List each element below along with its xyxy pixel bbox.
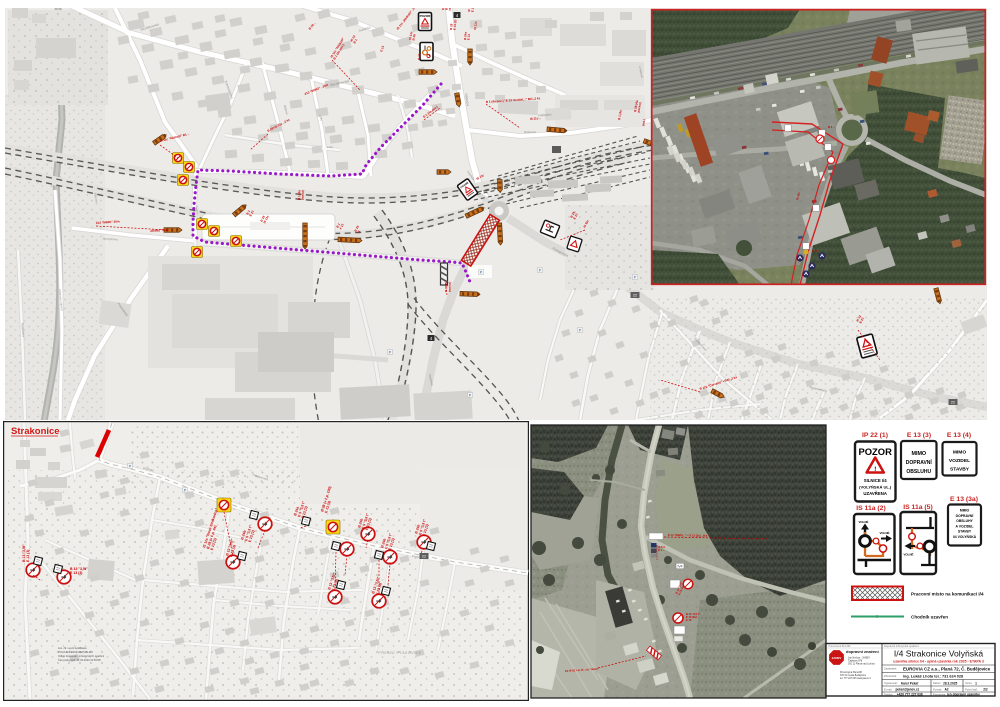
svg-text:E 13 (3): E 13 (3): [70, 571, 82, 575]
svg-text:VOZIDEL: VOZIDEL: [949, 458, 970, 464]
svg-text:DOPRAVNÍ: DOPRAVNÍ: [906, 458, 933, 466]
svg-text:IS 11a (2): IS 11a (2): [856, 505, 885, 512]
svg-text:OBSLUHY: OBSLUHY: [956, 519, 973, 523]
svg-text:Datum:: Datum:: [933, 681, 942, 685]
svg-text:+420 777 227 036: +420 777 227 036: [897, 693, 923, 697]
svg-text:E 13 (3): E 13 (3): [26, 550, 30, 562]
svg-text:Odbor dopravně - inženýrských: Odbor dopravně - inženýrských opatření: [58, 654, 105, 658]
svg-text:tel. 777 227 036 www.janev.cz: tel. 777 227 036 www.janev.cz: [840, 677, 872, 680]
svg-text:Tovární: Tovární: [195, 205, 200, 215]
svg-text:E 13 (3a): E 13 (3a): [950, 496, 978, 503]
svg-text:(VOLYŇSKÁ UL.): (VOLYŇSKÁ UL.): [859, 485, 892, 490]
svg-text:IS 11c: IS 11c: [473, 21, 478, 30]
svg-text:MIMO: MIMO: [953, 450, 967, 456]
svg-text:A2: A2: [944, 688, 948, 692]
svg-text:Pracovní místo na komunikaci I: Pracovní místo na komunikaci I/4: [911, 592, 984, 597]
svg-text:B 28: B 28: [417, 53, 422, 60]
svg-text:!: !: [874, 467, 876, 473]
svg-text:Lužy: Lužy: [327, 145, 334, 149]
svg-text:STAVBY: STAVBY: [950, 467, 970, 473]
svg-text:jen dopravní uzavírky: jen dopravní uzavírky: [946, 693, 980, 697]
svg-text:pekar@janev.cz: pekar@janev.cz: [895, 688, 919, 692]
svg-text:E 13: E 13: [812, 249, 818, 253]
svg-text:Strakonice: Strakonice: [11, 426, 60, 437]
svg-text:STAVBY: STAVBY: [958, 530, 972, 534]
svg-text:391 11 Planá nad Lužnicí: 391 11 Planá nad Lužnicí: [848, 663, 875, 666]
svg-text:zen. čk. Lesní kvalifikace: zen. čk. Lesní kvalifikace: [58, 646, 87, 650]
svg-text:Zadavatel:: Zadavatel:: [884, 667, 897, 671]
svg-text:22: 22: [422, 555, 426, 559]
svg-text:B 1 ..: B 1 ..: [658, 549, 664, 552]
svg-text:Provozovna Planá 88: Provozovna Planá 88: [840, 671, 863, 674]
svg-text:uzavírka silnice I/4 - úplná u: uzavírka silnice I/4 - úplná uzavírka ro…: [893, 660, 984, 664]
svg-text:Verze:: Verze:: [965, 681, 973, 685]
svg-text:PŘEDNÍ PTÁKOVICE: PŘEDNÍ PTÁKOVICE: [378, 650, 421, 655]
svg-text:DOPRAVNÍ: DOPRAVNÍ: [956, 513, 975, 518]
svg-text:Dopravně inženýrské opatření:: Dopravně inženýrské opatření:: [884, 644, 920, 648]
svg-text:Provozovna 512 262: Provozovna 512 262: [829, 645, 852, 648]
svg-text:pozice): pozice): [447, 282, 451, 292]
svg-text:Jeronýmova: Jeronýmova: [102, 237, 118, 242]
svg-text:Vypracoval:: Vypracoval:: [884, 681, 898, 685]
svg-text:22: 22: [951, 401, 955, 405]
svg-text:EUROVIA CZ a.s., Planá 72, Č.: EUROVIA CZ a.s., Planá 72, Č. Budějovice: [903, 667, 991, 672]
svg-text:E 13 "MIMO..." + E 13 (3a) ..2: E 13 "MIMO..." + E 13 (3a) ..2ks: [668, 533, 708, 538]
svg-text:MIMO: MIMO: [911, 451, 926, 457]
svg-text:JANEV: JANEV: [832, 656, 842, 660]
svg-text:UZAVŘENA: UZAVŘENA: [863, 491, 887, 496]
svg-text:VOLNÉ: VOLNÉ: [880, 530, 890, 535]
svg-text:dopravní značení: dopravní značení: [846, 649, 880, 654]
svg-text:MIMO: MIMO: [960, 509, 970, 513]
svg-text:A VOZIDEL: A VOZIDEL: [956, 524, 974, 528]
svg-text:Strakonice: Strakonice: [524, 130, 537, 134]
svg-text:OBSLUHU: OBSLUHU: [906, 469, 931, 475]
svg-text:IP 22 (1): IP 22 (1): [862, 432, 888, 439]
svg-text:Zhotovitel:: Zhotovitel:: [884, 674, 897, 678]
svg-text:Formát:: Formát:: [933, 687, 942, 691]
svg-text:28.3.2025: 28.3.2025: [943, 681, 957, 685]
svg-text:VOLNÉ: VOLNÉ: [859, 519, 869, 524]
svg-text:E 7b: E 7b: [686, 618, 692, 622]
svg-text:B 1 ..: B 1 ..: [828, 125, 835, 129]
svg-text:E 13: E 13: [470, 8, 475, 12]
svg-text:370 01 České Budějovice: 370 01 České Budějovice: [840, 674, 867, 677]
svg-text:POZOR: POZOR: [859, 446, 893, 457]
svg-text:Karel Pekař: Karel Pekař: [901, 681, 919, 685]
svg-text:E 13: E 13: [466, 34, 471, 41]
svg-text:SILNICE I/4: SILNICE I/4: [864, 478, 888, 483]
svg-text:E 13 (3): E 13 (3): [907, 432, 931, 439]
svg-text:pozice): pozice): [300, 190, 304, 200]
svg-text:IV4: IV4: [677, 565, 682, 569]
svg-text:Poznámka:: Poznámka:: [933, 692, 946, 696]
svg-text:22: 22: [633, 294, 637, 298]
svg-text:Počet listů:: Počet listů:: [965, 687, 978, 691]
svg-text:1: 1: [975, 681, 977, 685]
svg-text:E 13 (4): E 13 (4): [947, 432, 971, 439]
svg-text:I/4 Strakonice Volyňská: I/4 Strakonice Volyňská: [894, 649, 984, 659]
svg-text:VOLNÉ: VOLNÉ: [904, 552, 914, 557]
svg-text:POZOR: POZOR: [420, 14, 432, 18]
svg-text:Telefon:: Telefon:: [884, 692, 893, 696]
svg-text:2/2: 2/2: [983, 688, 988, 692]
svg-text:Chodník uzavřen: Chodník uzavřen: [911, 615, 948, 620]
svg-text:E-mail:: E-mail:: [884, 687, 892, 691]
svg-text:I/4 VOLYŇSKÁ: I/4 VOLYŇSKÁ: [953, 534, 977, 539]
svg-text:ing. Lukáš Lhota tel.: 731 624: ing. Lukáš Lhota tel.: 731 624 028: [903, 675, 963, 679]
svg-text:IS 11a (5): IS 11a (5): [903, 504, 932, 511]
